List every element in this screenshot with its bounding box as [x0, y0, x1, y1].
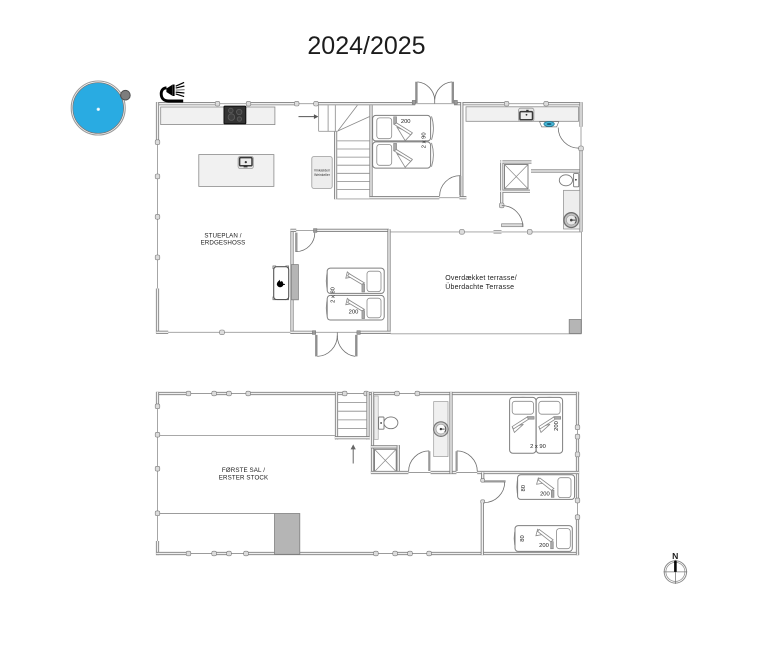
svg-text:Überdachte Terrasse: Überdachte Terrasse — [445, 283, 514, 291]
svg-text:200: 200 — [349, 309, 359, 315]
svg-text:Overdækket terrasse/: Overdækket terrasse/ — [445, 275, 517, 282]
svg-text:FØRSTE SAL /: FØRSTE SAL / — [222, 467, 265, 474]
svg-text:2024/2025: 2024/2025 — [307, 32, 425, 60]
svg-text:200: 200 — [401, 119, 411, 125]
svg-text:ERDGESHOSS: ERDGESHOSS — [201, 240, 246, 247]
svg-text:2 x 90: 2 x 90 — [422, 132, 428, 148]
svg-text:200: 200 — [554, 421, 560, 431]
svg-text:Vinkælder/: Vinkælder/ — [314, 169, 330, 173]
svg-text:200: 200 — [540, 491, 550, 497]
svg-text:2 x 90: 2 x 90 — [530, 444, 546, 450]
svg-text:200: 200 — [539, 543, 549, 549]
svg-text:80: 80 — [521, 485, 527, 491]
svg-text:STUEPLAN /: STUEPLAN / — [204, 232, 241, 239]
svg-text:80: 80 — [520, 535, 526, 541]
svg-text:Weinkeller: Weinkeller — [314, 173, 331, 177]
svg-text:ERSTER STOCK: ERSTER STOCK — [219, 474, 269, 481]
svg-text:2 x 80: 2 x 80 — [331, 287, 337, 303]
svg-text:N: N — [672, 551, 678, 561]
